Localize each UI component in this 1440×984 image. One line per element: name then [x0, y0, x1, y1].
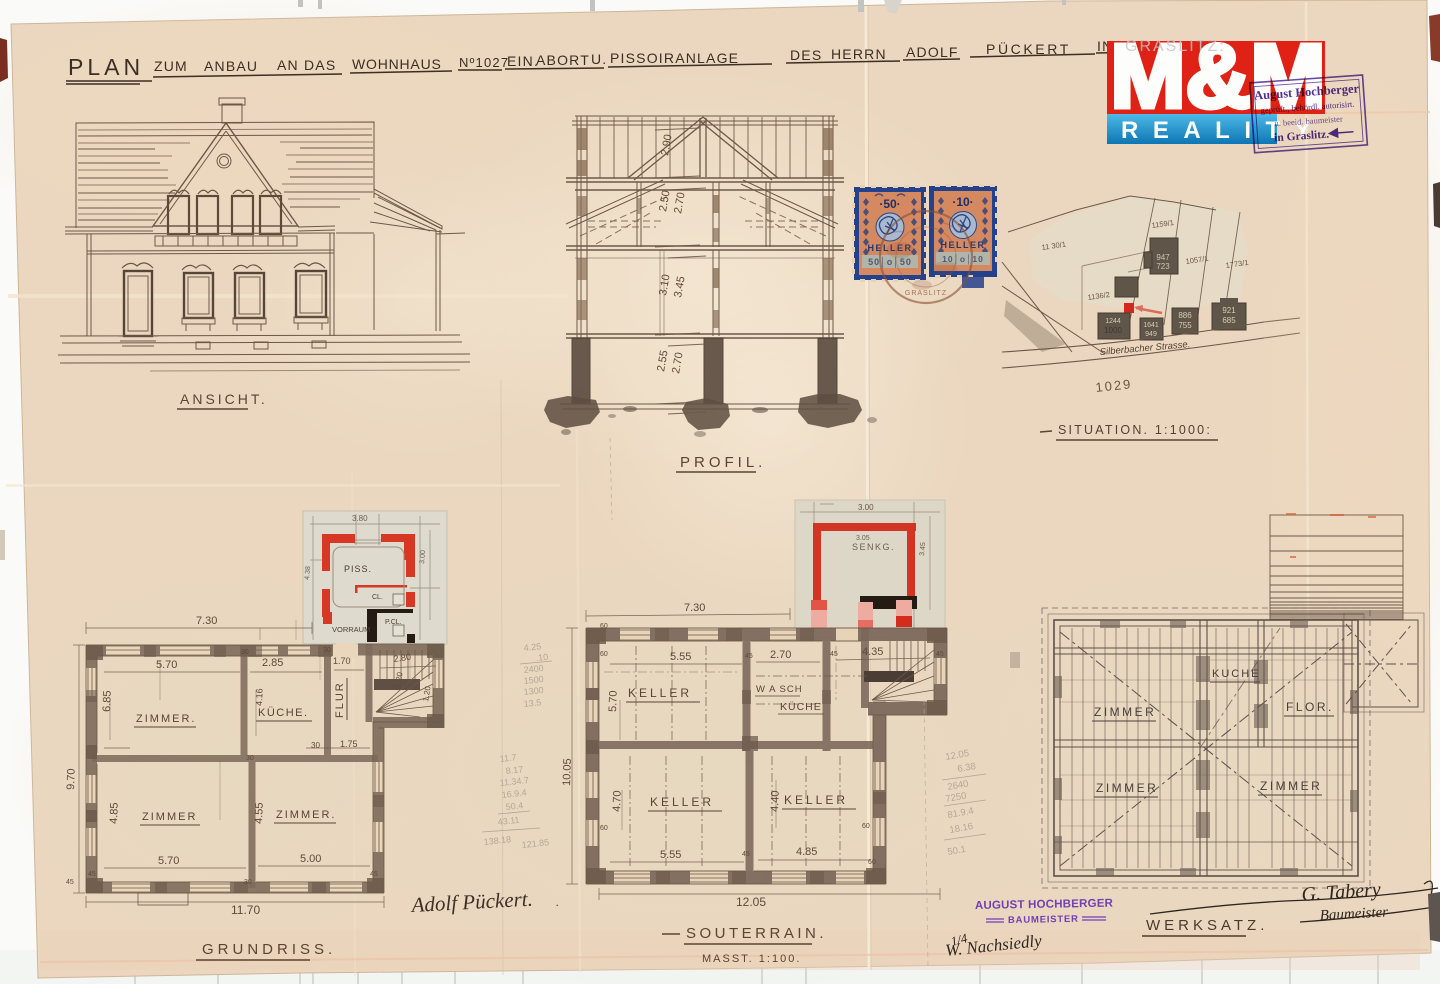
svg-text:3.80: 3.80	[352, 514, 368, 523]
svg-text:SENKG.: SENKG.	[852, 542, 895, 552]
svg-text:45: 45	[88, 871, 96, 878]
svg-text:PROFIL.: PROFIL.	[680, 454, 766, 471]
svg-text:7.30: 7.30	[196, 615, 217, 627]
svg-text:11.7: 11.7	[499, 752, 517, 764]
svg-text:1244: 1244	[1105, 318, 1121, 325]
svg-text:KELLER: KELLER	[784, 793, 848, 807]
svg-text:HELLER: HELLER	[941, 240, 986, 250]
svg-text:ZIMMER: ZIMMER	[1094, 705, 1156, 719]
svg-text:921: 921	[1222, 306, 1236, 315]
svg-text:723: 723	[1156, 262, 1170, 271]
svg-text:12.05: 12.05	[736, 895, 766, 909]
svg-text:60: 60	[868, 859, 876, 866]
svg-text:·50·: ·50·	[879, 197, 900, 211]
svg-text:60: 60	[600, 651, 608, 658]
svg-text:KUCHE: KUCHE	[1212, 668, 1261, 680]
svg-text:7.30: 7.30	[684, 602, 705, 614]
svg-text:ADOLF: ADOLF	[906, 44, 959, 60]
svg-text:4.85: 4.85	[108, 802, 121, 824]
svg-text:WOHNHAUS: WOHNHAUS	[352, 56, 442, 72]
svg-text:4.25: 4.25	[523, 641, 541, 653]
svg-text:AUGUST HOCHBERGER: AUGUST HOCHBERGER	[975, 898, 1114, 912]
svg-text:10.05: 10.05	[561, 758, 574, 786]
svg-text:KELLER: KELLER	[650, 795, 714, 809]
svg-text:11.70: 11.70	[231, 903, 260, 917]
svg-text:AN: AN	[277, 57, 299, 73]
svg-text:4.70: 4.70	[611, 790, 624, 812]
svg-text:60: 60	[600, 623, 608, 630]
svg-text:1.70: 1.70	[333, 656, 351, 666]
svg-text:4.40: 4.40	[769, 790, 782, 812]
svg-text:45: 45	[830, 651, 838, 658]
svg-text:ZIMMER: ZIMMER	[1260, 779, 1322, 793]
svg-text:KÜCHE.: KÜCHE.	[258, 707, 309, 719]
svg-text:ZIMMER: ZIMMER	[1096, 781, 1158, 795]
svg-text:VORRAUM: VORRAUM	[332, 625, 370, 634]
svg-text:KÜCHE: KÜCHE	[780, 701, 822, 713]
svg-text:5.70: 5.70	[156, 659, 177, 671]
svg-text:947: 947	[1156, 253, 1170, 262]
svg-text:3.05: 3.05	[856, 535, 870, 542]
svg-text:8.17: 8.17	[505, 764, 523, 776]
svg-text:5.70: 5.70	[607, 690, 620, 712]
svg-text:.: .	[556, 895, 559, 909]
svg-text:5.70: 5.70	[158, 855, 179, 867]
svg-text:1300: 1300	[523, 685, 544, 697]
svg-text:PLAN: PLAN	[68, 54, 144, 80]
svg-text:ABORT: ABORT	[536, 52, 590, 68]
svg-text:ZUM: ZUM	[154, 58, 188, 74]
svg-text:4.16: 4.16	[254, 688, 265, 706]
svg-text:Nº1027: Nº1027	[459, 55, 509, 70]
svg-text:ANBAU: ANBAU	[204, 58, 258, 74]
svg-text:30: 30	[244, 879, 252, 886]
svg-text:5.00: 5.00	[300, 853, 321, 865]
svg-text:30: 30	[241, 649, 249, 656]
svg-text:ZIMMER.: ZIMMER.	[276, 809, 336, 821]
svg-text:GRASLITZ:: GRASLITZ:	[1125, 38, 1226, 55]
svg-text:30: 30	[311, 741, 320, 750]
svg-text:DAS: DAS	[304, 57, 336, 73]
svg-text:30: 30	[246, 755, 254, 762]
svg-text:45: 45	[936, 651, 944, 658]
svg-text:MASST. 1:100.: MASST. 1:100.	[702, 953, 801, 965]
svg-text:45: 45	[370, 871, 378, 878]
svg-text:45: 45	[745, 653, 753, 660]
svg-text:PISSOIRANLAGE: PISSOIRANLAGE	[610, 50, 739, 66]
svg-text:50.4: 50.4	[505, 800, 523, 812]
svg-text:13.5: 13.5	[523, 697, 541, 709]
svg-text:FLOR.: FLOR.	[1286, 700, 1334, 714]
svg-text:60: 60	[862, 823, 870, 830]
svg-text:949: 949	[1145, 331, 1157, 338]
svg-text:EIN.: EIN.	[507, 53, 539, 69]
svg-text:P.CL.: P.CL.	[385, 619, 402, 626]
svg-text:SOUTERRAIN.: SOUTERRAIN.	[686, 925, 827, 942]
svg-text:9.70: 9.70	[65, 768, 78, 790]
svg-text:1.75: 1.75	[340, 739, 358, 749]
svg-text:3.45: 3.45	[919, 542, 927, 556]
svg-text:6.85: 6.85	[101, 690, 114, 712]
svg-text:ANSICHT.: ANSICHT.	[180, 391, 268, 407]
svg-text:BAUMEISTER: BAUMEISTER	[1008, 914, 1079, 926]
svg-text:45: 45	[66, 879, 74, 886]
svg-text:886: 886	[1178, 311, 1192, 320]
svg-text:30: 30	[323, 647, 331, 654]
svg-text:U.: U.	[591, 51, 607, 67]
svg-text:3.00: 3.00	[858, 503, 874, 512]
svg-text:2.85: 2.85	[262, 657, 283, 669]
svg-text:45: 45	[742, 851, 750, 858]
svg-text:ZIMMER.: ZIMMER.	[136, 713, 196, 725]
svg-text:·10·: ·10·	[952, 195, 973, 209]
svg-text:2.70: 2.70	[770, 649, 791, 661]
svg-text:4.85: 4.85	[796, 846, 817, 858]
svg-text:685: 685	[1222, 316, 1236, 325]
svg-text:WERKSATZ.: WERKSATZ.	[1146, 917, 1268, 934]
svg-text:5.55: 5.55	[670, 651, 691, 663]
svg-text:W A SCH: W A SCH	[756, 684, 803, 695]
svg-text:GRUNDRISS.: GRUNDRISS.	[202, 941, 336, 958]
svg-text:50│о│50: 50│о│50	[868, 256, 912, 268]
svg-text:5.55: 5.55	[660, 849, 681, 861]
svg-text:ZIMMER: ZIMMER	[142, 811, 197, 823]
svg-text:1641: 1641	[1143, 322, 1159, 329]
svg-text:DES: DES	[790, 47, 822, 63]
svg-text:PISS.: PISS.	[344, 564, 372, 574]
svg-text:KELLER: KELLER	[628, 686, 692, 700]
svg-text:SITUATION. 1:1000:: SITUATION. 1:1000:	[1058, 423, 1212, 437]
svg-text:60: 60	[600, 825, 608, 832]
svg-text:755: 755	[1178, 321, 1192, 330]
svg-text:HERRN: HERRN	[831, 46, 887, 62]
svg-text:4.35: 4.35	[862, 646, 883, 658]
svg-text:3.00: 3.00	[419, 550, 427, 564]
svg-text:4.55: 4.55	[253, 802, 266, 824]
svg-text:1000: 1000	[1104, 326, 1122, 335]
svg-text:4.38: 4.38	[304, 566, 312, 580]
svg-text:GRASLITZ: GRASLITZ	[905, 290, 947, 297]
svg-text:CL.: CL.	[372, 594, 383, 601]
svg-text:FLUR: FLUR	[334, 681, 346, 718]
